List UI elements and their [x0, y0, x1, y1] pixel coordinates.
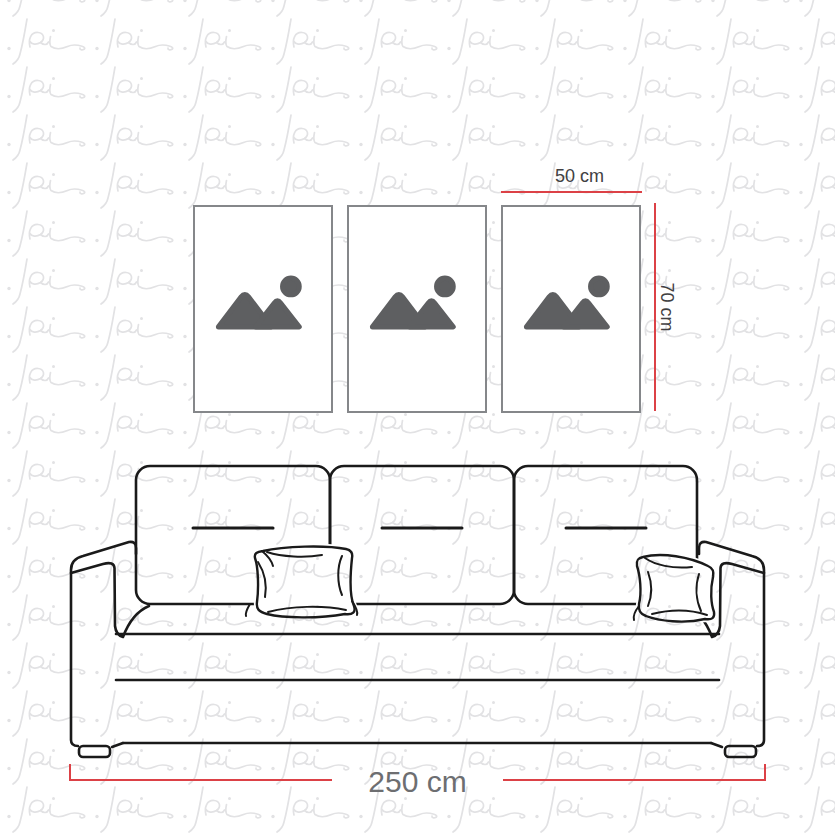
- sofa-width-dimension-tick-right: [764, 764, 766, 781]
- frame-height-dimension-line: [654, 203, 656, 411]
- sofa-width-dimension-tick-left: [69, 764, 71, 781]
- frame-width-label: 50 cm: [509, 166, 650, 186]
- dimension-annotations: 50 cm 70 cm 250 cm: [0, 0, 835, 834]
- sofa-width-dimension-line-left: [69, 779, 332, 781]
- sofa-width-dimension-line-right: [503, 779, 766, 781]
- frame-width-dimension-line: [501, 191, 642, 193]
- size-guide-diagram: 50 cm 70 cm 250 cm: [0, 0, 835, 834]
- sofa-width-label: 250 cm: [332, 765, 503, 799]
- frame-height-label: 70 cm: [657, 277, 677, 337]
